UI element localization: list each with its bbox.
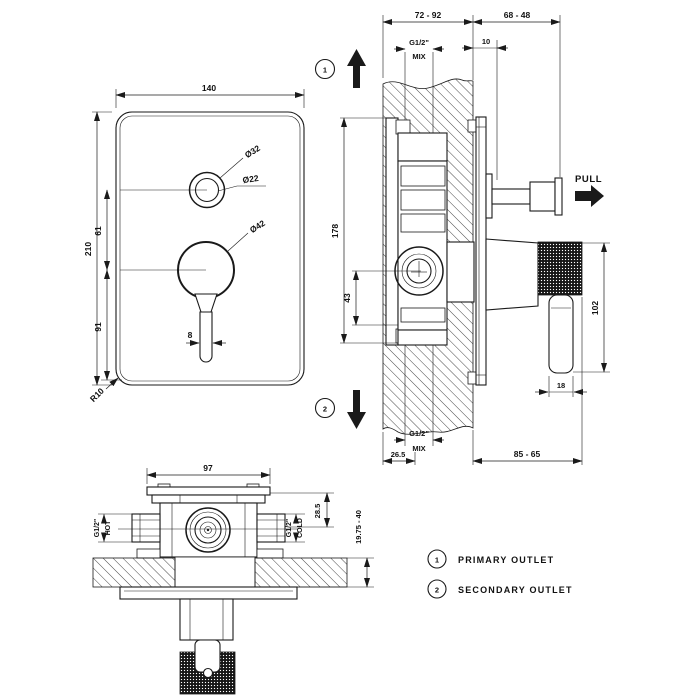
dim-cartridge-offset: 43 [342,293,352,303]
primary-outlet-up-arrow-icon [347,49,366,88]
bottom-view: 97 [93,463,374,694]
dim-body-width: 97 [203,463,213,473]
dim-plate-offset: 10 [482,37,490,46]
pull-diverter: PULL [486,174,604,218]
mix-top-label: MIX [412,52,425,61]
dim-handle-width: 18 [557,381,565,390]
wall-slab-left [93,558,175,587]
mix-top-thread: G1/2" [409,38,429,47]
pull-label: PULL [575,174,602,185]
mixer-installation-drawing: 140 210 61 91 Ø32 Ø22 Ø42 8 R10 [0,0,700,700]
lever-stem [200,312,212,362]
mix-bottom-label: MIX [412,444,425,453]
hot-thread: G1/2" [94,519,101,538]
legend: 1 PRIMARY OUTLET 2 SECONDARY OUTLET [428,550,573,598]
dim-corner-radius: R10 [88,386,106,404]
callout-2-number: 2 [323,405,327,414]
lever-end-bottom [195,640,220,672]
dim-knob-projection: 68 - 48 [504,10,531,20]
dim-plate-width: 140 [202,83,216,93]
cold-label: COLD [297,518,304,538]
dim-spacing-top: 61 [93,226,103,236]
dim-dia-knob: Ø42 [248,218,267,235]
handle-knurl [538,242,582,295]
dim-body-height: 178 [330,224,340,238]
legend-2-number: 2 [435,586,439,595]
wall-slab-right [255,558,347,587]
technical-drawing-page: 140 210 61 91 Ø32 Ø22 Ø42 8 R10 [0,0,700,700]
dim-handle-length: 102 [590,301,600,315]
lever-neck [195,294,217,312]
section-view: PULL 72 - 92 68 - 48 10 G1/2" MIX 178 [316,10,611,465]
legend-2-label: SECONDARY OUTLET [458,585,573,595]
dim-recess-depth: 72 - 92 [415,10,442,20]
mix-bottom-thread: G1/2" [409,429,429,438]
hot-inlet-pipe [132,514,160,542]
handle [486,239,582,373]
cold-inlet-pipe [257,514,285,542]
dim-dia-inner: Ø22 [242,173,260,185]
plate-and-handle-bottom [120,587,297,694]
cold-thread: G1/2" [286,519,293,538]
dim-lever-width: 8 [188,330,193,340]
dim-dia-outer: Ø32 [243,143,262,160]
front-view: 140 210 61 91 Ø32 Ø22 Ø42 8 R10 [83,83,304,404]
dim-plate-height: 210 [83,242,93,256]
dim-mix-offset: 26.5 [391,450,406,459]
callout-1-number: 1 [323,66,327,75]
pull-arrow-icon [575,185,604,207]
dim-handle-projection: 85 - 65 [514,449,541,459]
dim-inlet-offset: 28.5 [313,504,322,519]
legend-1-number: 1 [435,556,439,565]
handle-lever [549,295,573,373]
dim-wall-thickness: 19.75 - 40 [354,510,363,544]
hot-label: HOT [105,520,112,536]
legend-1-label: PRIMARY OUTLET [458,555,554,565]
secondary-outlet-down-arrow-icon [347,390,366,429]
dim-spacing-bottom: 91 [93,322,103,332]
